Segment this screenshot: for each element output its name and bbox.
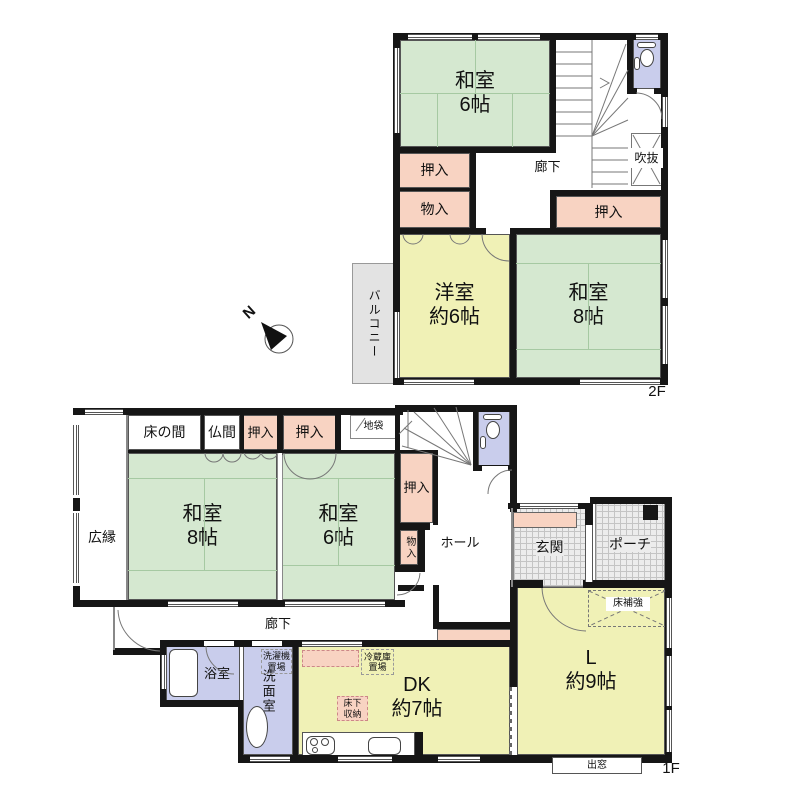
porch-pillar xyxy=(643,505,658,520)
tatami-line xyxy=(512,94,513,147)
compass-north-label: N xyxy=(240,303,259,323)
burner-icon xyxy=(312,747,318,753)
corridor-label-2f: 廊下 xyxy=(520,158,575,176)
room-label: 広縁 xyxy=(88,529,116,546)
door-arc xyxy=(118,610,160,651)
room-1f-closet-a: 押入 xyxy=(243,415,278,450)
room-label: 押入 xyxy=(595,204,623,221)
room-2f-storage: 物入 xyxy=(399,191,470,228)
floor-reinforce-label: 床補強 xyxy=(606,597,650,611)
room-label: 押入 xyxy=(421,162,449,179)
room-label: 床下 収納 xyxy=(343,698,361,719)
burner-icon xyxy=(310,738,318,746)
room-label: 和室 8帖 xyxy=(183,503,223,550)
underfloor-storage: 床下 収納 xyxy=(337,696,368,721)
floor-plan: バルコニー 和室 6帖 押入 物入 押入 洋室 約6帖 和室 8帖 xyxy=(0,0,800,800)
room-2f-closet-left: 押入 xyxy=(399,153,470,188)
room-label: 洗濯機 置場 xyxy=(263,651,290,672)
washbasin-icon xyxy=(480,436,486,449)
room-1f-closet-b: 押入 xyxy=(283,415,336,450)
room-label: L 約9帖 xyxy=(565,647,616,694)
room-1f-jibukuro: 地袋 xyxy=(350,415,397,439)
room-label: 物入 xyxy=(403,536,415,560)
washbasin-icon xyxy=(634,57,640,70)
tatami-line xyxy=(516,349,661,350)
toilet-icon xyxy=(640,49,654,67)
tatami-line xyxy=(400,93,550,94)
floor-label-1f: 1F xyxy=(654,760,688,778)
dk-label: DK 約7帖 xyxy=(372,668,462,728)
floor-label-2f: 2F xyxy=(642,383,672,400)
room-label: 洋室 約6帖 xyxy=(429,282,480,329)
room-1f-storage: 物入 xyxy=(400,530,418,565)
tatami-line xyxy=(282,565,395,566)
room-label: ポーチ xyxy=(609,536,651,553)
room-label: 押入 xyxy=(247,425,273,440)
tatami-line xyxy=(437,94,438,147)
dk-living-divider xyxy=(509,687,512,756)
tatami-line xyxy=(338,478,339,565)
kitchen-sink-icon xyxy=(368,737,401,755)
room-label: 床の間 xyxy=(144,424,186,441)
dk-sliding-door xyxy=(302,641,362,647)
atrium-label: 吹抜 xyxy=(630,148,663,168)
tatami-line xyxy=(128,478,277,479)
room-label: 玄関 xyxy=(536,539,564,556)
tatami-line xyxy=(128,570,277,571)
room-label: 出窓 xyxy=(587,760,607,772)
burner-icon xyxy=(321,738,329,746)
room-1f-tokonoma: 床の間 xyxy=(128,415,201,450)
door-arc xyxy=(488,470,512,494)
sink-icon xyxy=(246,706,268,748)
toilet-tank-icon xyxy=(637,42,656,48)
tatami-line xyxy=(475,40,476,94)
room-label: 押入 xyxy=(403,480,429,495)
room-label: 浴室 xyxy=(204,666,230,681)
toilet-tank-icon xyxy=(483,414,502,420)
room-2f-balcony: バルコニー xyxy=(352,263,396,384)
tatami-line xyxy=(588,263,589,349)
counter-area xyxy=(302,650,359,667)
corridor-label-1f: 廊下 xyxy=(250,614,306,634)
room-label: 地袋 xyxy=(364,421,384,433)
compass-icon xyxy=(261,322,293,353)
hall-label: ホール xyxy=(430,532,490,554)
door-arc xyxy=(636,93,662,119)
bath-door-gap xyxy=(204,641,234,646)
room-2f-closet-right: 押入 xyxy=(556,196,661,228)
toilet-door-gap xyxy=(482,466,508,471)
room-label: 物入 xyxy=(421,201,449,218)
room-label: 仏間 xyxy=(208,424,236,441)
bay-window: 出窓 xyxy=(552,757,642,774)
shoe-cabinet xyxy=(513,512,577,528)
room-1f-butsuma: 仏間 xyxy=(204,415,240,450)
front-door xyxy=(585,525,593,582)
washroom-door-gap xyxy=(252,641,282,646)
stairs-up-arrow xyxy=(600,78,609,88)
room-1f-hiroen: 広縁 xyxy=(78,415,126,600)
room-label: 押入 xyxy=(296,424,324,441)
bathtub-icon xyxy=(169,649,198,697)
room-label: 洗面室 xyxy=(260,669,275,714)
tatami-line xyxy=(204,478,205,570)
room-label: バルコニー xyxy=(367,289,381,359)
toilet-icon xyxy=(486,421,500,439)
room-2f-western: 洋室 約6帖 xyxy=(399,234,510,378)
room-1f-washitsu8: 和室 8帖 xyxy=(128,453,277,600)
washing-machine-area: 洗濯機 置場 xyxy=(261,649,292,674)
room-1f-closet-c: 押入 xyxy=(400,453,433,523)
door-arc xyxy=(397,573,420,595)
